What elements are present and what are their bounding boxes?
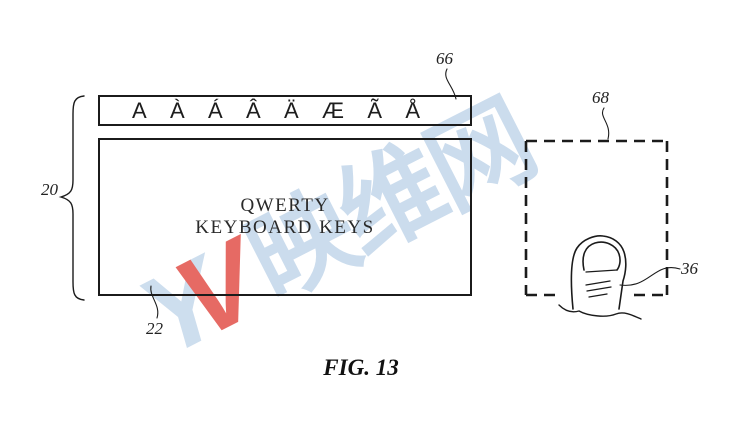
ref-label-66: 66: [436, 50, 453, 67]
finger-illustration: [559, 236, 641, 319]
ref-label-20: 20: [28, 181, 58, 198]
ref-label-68: 68: [592, 89, 609, 106]
ref-label-22: 22: [146, 320, 163, 337]
patent-figure: YV 映维网 AÀÁÂÄÆÃÅ QWERTY KEYBOARD KEYS: [0, 0, 732, 433]
leader-66: [446, 69, 456, 99]
leader-68: [602, 108, 608, 139]
leader-36: [620, 268, 680, 286]
ref-label-36: 36: [681, 260, 698, 277]
leader-22: [151, 286, 158, 318]
figure-caption: FIG. 13: [286, 355, 436, 381]
brace-20: [61, 96, 84, 300]
